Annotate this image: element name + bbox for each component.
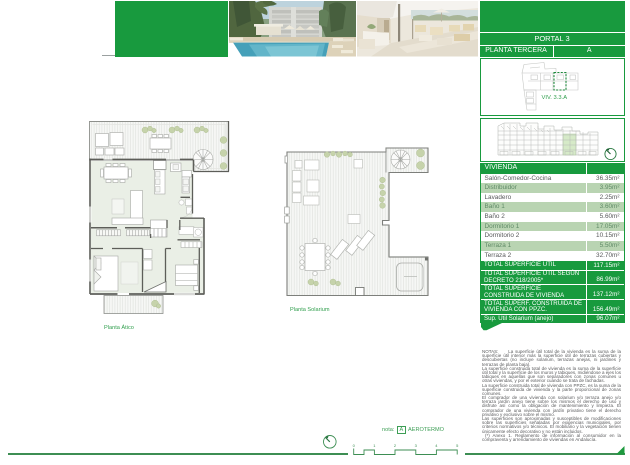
- svg-text:VIV. 3.3.A: VIV. 3.3.A: [542, 95, 568, 101]
- svg-text:4: 4: [435, 443, 438, 448]
- svg-text:5: 5: [456, 443, 459, 448]
- svg-text:3: 3: [415, 443, 418, 448]
- svg-text:1: 1: [373, 443, 376, 448]
- svg-text:0: 0: [353, 443, 356, 448]
- svg-text:2: 2: [394, 443, 397, 448]
